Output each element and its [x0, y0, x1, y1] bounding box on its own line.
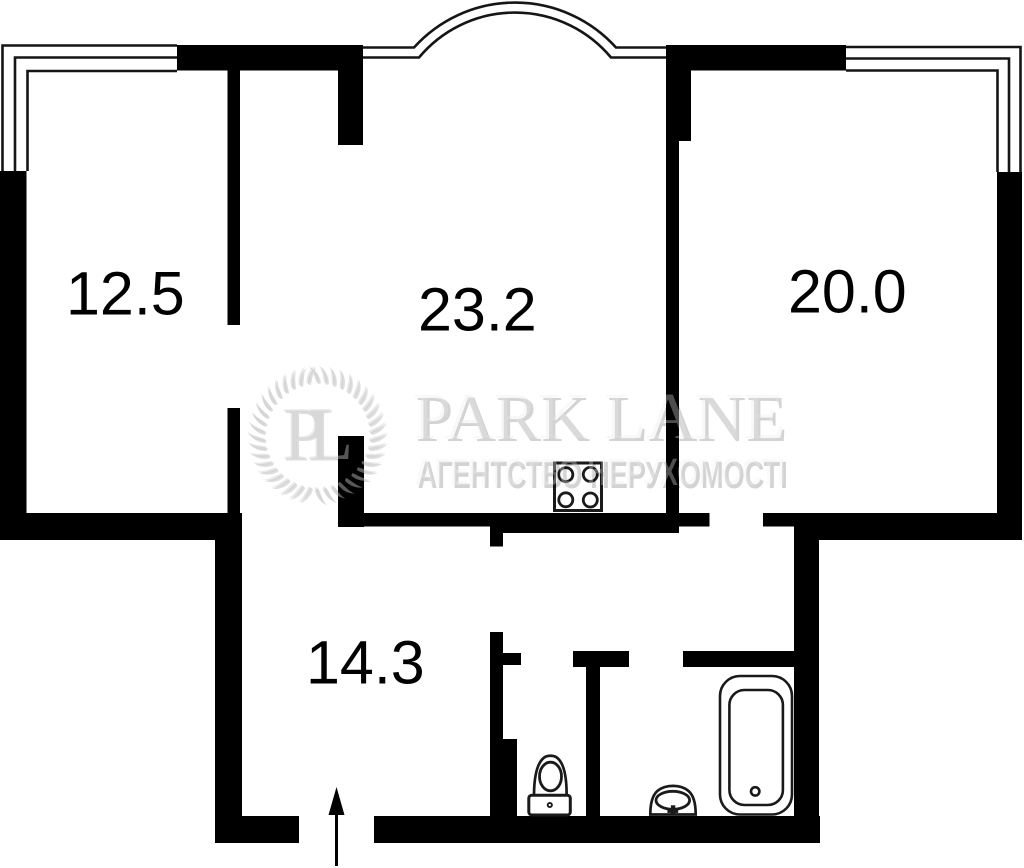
svg-text:АГЕНТСТВО НЕРУХОМОСТІ: АГЕНТСТВО НЕРУХОМОСТІ	[415, 452, 785, 494]
svg-text:20.0: 20.0	[788, 258, 907, 326]
svg-text:PARK LANE: PARK LANE	[413, 380, 785, 453]
svg-text:12.5: 12.5	[66, 260, 185, 328]
svg-text:L: L	[307, 392, 353, 476]
svg-text:23.2: 23.2	[418, 276, 537, 344]
svg-text:14.3: 14.3	[306, 629, 425, 697]
